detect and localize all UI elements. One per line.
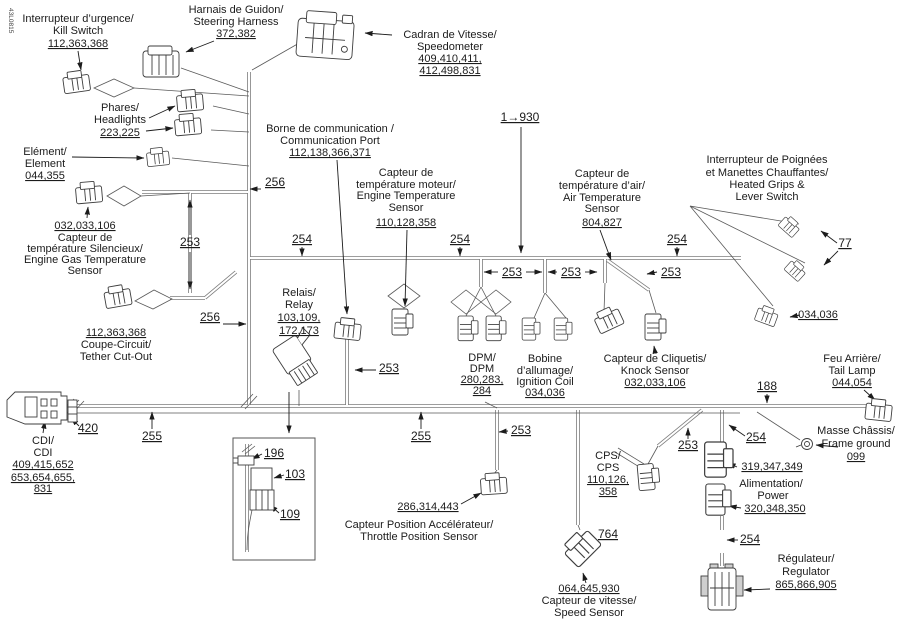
gas-temp-sensor-label: 032,033,106 Capteur de température Silen… — [24, 220, 146, 277]
label-line: Capteur de — [575, 168, 629, 180]
dimension-label: 253 — [502, 265, 522, 279]
element-label: Elément/ Element 044,355 — [23, 146, 67, 182]
dimension-label: 109 — [280, 507, 300, 521]
part-numbers: 034,036 — [525, 387, 565, 399]
label-line: Capteur de Cliquetis/ — [604, 353, 708, 365]
label-line: Speedometer — [417, 41, 483, 53]
wire-links — [94, 42, 805, 550]
label-line: Relais/ — [282, 287, 317, 299]
label-line: CPS/ — [595, 450, 622, 462]
label-line: Tether Cut-Out — [80, 351, 152, 363]
label-line: Cadran de Vitesse/ — [403, 29, 497, 41]
label-line: Communication Port — [280, 135, 380, 147]
dimension-label: 254 — [667, 232, 687, 246]
part-numbers: 112,363,368 — [48, 38, 108, 50]
air-temp-connector-icon — [592, 304, 624, 334]
part-numbers: 044,054 — [832, 377, 872, 389]
part-numbers: 409,410,411, — [418, 53, 481, 65]
label-line: CPS — [597, 462, 620, 474]
knock-sensor-connector-icon — [645, 314, 666, 340]
label-line: Knock Sensor — [621, 365, 690, 377]
part-numbers: 320,348,350 — [744, 503, 805, 515]
tether-connector-icon — [103, 283, 132, 308]
label-line: Heated Grips & — [729, 179, 805, 191]
label-line: Borne de communication / — [266, 123, 395, 135]
headlight-connector-icon — [174, 113, 202, 136]
throttle-position-sensor-connector-icon — [480, 472, 507, 495]
part-numbers: 319,347,349 — [741, 461, 802, 473]
part-numbers: 172,173 — [279, 325, 319, 337]
engine-temp-sensor-label: Capteur de température moteur/ Engine Te… — [356, 167, 457, 229]
label-line: Capteur de vitesse/ — [542, 595, 638, 607]
wire-range-label: 1→930 — [501, 110, 540, 124]
headlights-label: Phares/ Headlights 223,225 — [94, 102, 146, 139]
dimension-label: 188 — [757, 379, 777, 393]
label-line: Sensor — [68, 265, 103, 277]
dimension-label: 764 — [598, 527, 618, 541]
label-line: CDI/ — [32, 435, 55, 447]
part-numbers: 286,314,443 — [397, 501, 458, 513]
dimension-label: 253 — [379, 361, 399, 375]
label-line: CDI — [34, 447, 53, 459]
label-line: Speed Sensor — [554, 607, 624, 619]
regulator-label: Régulateur/ Regulator 865,866,905 — [775, 553, 836, 591]
heated-grip-connector-icon — [784, 258, 808, 282]
label-line: Steering Harness — [194, 16, 279, 28]
dimension-label: 253 — [511, 423, 531, 437]
part-numbers: 064,645,930 — [558, 583, 619, 595]
part-numbers: 865,866,905 — [775, 579, 836, 591]
dimension-label: 255 — [411, 429, 431, 443]
label-line: Sensor — [389, 202, 424, 214]
label-line: Sensor — [585, 203, 620, 215]
speedometer-connector-icon — [296, 10, 355, 60]
wiring-diagram-page: 43L0815 Interrupteur d’urgence/ Kill Swi… — [0, 0, 900, 621]
part-numbers: 223,225 — [100, 127, 140, 139]
ignition-coil-label: Bobine d’allumage/ Ignition Coil 034,036 — [516, 353, 574, 399]
label-line: Frame ground — [821, 438, 890, 450]
part-numbers: 110,128,358 — [376, 217, 436, 229]
diagram-canvas: 43L0815 Interrupteur d’urgence/ Kill Swi… — [0, 0, 900, 621]
label-line: Alimentation/ — [739, 478, 804, 490]
part-numbers: 034,036 — [798, 309, 838, 321]
label-line: Regulator — [782, 566, 830, 578]
label-line: Phares/ — [101, 102, 140, 114]
part-numbers: 358 — [599, 486, 617, 498]
steering-harness-label: Harnais de Guidon/ Steering Harness 372,… — [189, 4, 285, 40]
kill-switch-connector-icon — [62, 69, 91, 93]
dimension-label: 253 — [561, 265, 581, 279]
throttle-position-sensor-label: 286,314,443 Capteur Position Accélérateu… — [345, 501, 495, 543]
dimension-label: 103 — [285, 467, 305, 481]
speedometer-label: Cadran de Vitesse/ Speedometer 409,410,4… — [403, 29, 497, 77]
label-line: Coupe-Circuit/ — [81, 339, 152, 351]
part-numbers: 103,109, — [278, 312, 321, 324]
dpm-label: DPM/ DPM 280,283, 284 — [461, 352, 504, 397]
part-numbers: 110,126, — [587, 474, 629, 486]
part-numbers: 112,138,366,371 — [289, 147, 371, 159]
label-line: et Manettes Chauffantes/ — [706, 167, 830, 179]
label-line: Capteur Position Accélérateur/ — [345, 519, 495, 531]
cps-connector-icon — [637, 463, 660, 491]
part-numbers: 099 — [847, 451, 865, 463]
air-temp-sensor-label: Capteur de température d’air/ Air Temper… — [559, 168, 646, 229]
dimension-label: 256 — [265, 175, 285, 189]
drawing-code: 43L0815 — [7, 8, 14, 34]
cdi-label: CDI/ CDI 409,415,652 653,654,655, 831 — [11, 435, 75, 495]
dpm-connector-icon — [486, 316, 506, 341]
part-numbers: 112,363,368 — [86, 327, 146, 339]
dimension-label: 196 — [264, 446, 284, 460]
cdi-connector-icon — [7, 392, 77, 424]
label-line: Kill Switch — [53, 25, 103, 37]
label-line: Throttle Position Sensor — [360, 531, 478, 543]
label-line: Régulateur/ — [778, 553, 836, 565]
dimension-label: 420 — [78, 421, 98, 435]
label-line: Feu Arrière/ — [823, 353, 881, 365]
label-line: Interrupteur d’urgence/ — [22, 13, 134, 25]
comm-port-connector-icon — [334, 317, 362, 341]
comm-port-label: Borne de communication / Communication P… — [266, 123, 395, 159]
power-connector-icon — [706, 484, 731, 515]
speed-sensor-label: 064,645,930 Capteur de vitesse/ Speed Se… — [542, 583, 638, 619]
dimension-label: 255 — [142, 429, 162, 443]
relay-label: Relais/ Relay 103,109, 172,173 — [278, 287, 321, 337]
label-line: Capteur de — [379, 167, 433, 179]
power-connector-icon — [705, 442, 733, 477]
inset-detail-parts — [233, 456, 274, 510]
tether-cutout-label: 112,363,368 Coupe-Circuit/ Tether Cut-Ou… — [80, 327, 152, 363]
kill-switch-label: Interrupteur d’urgence/ Kill Switch 112,… — [22, 13, 134, 50]
part-numbers: 284 — [473, 385, 491, 397]
dpm-connector-icon — [458, 316, 478, 341]
label-line: Interrupteur de Poignées — [706, 154, 828, 166]
dimension-label: 254 — [450, 232, 470, 246]
ignition-coil-connector-icon — [554, 318, 572, 340]
dimension-label: 254 — [292, 232, 312, 246]
gas-temp-connector-icon — [75, 181, 103, 204]
frame-ground-label: Masse Châssis/ Frame ground 099 — [817, 425, 896, 463]
label-line: Headlights — [94, 114, 146, 126]
heated-grip-connector-icon — [778, 214, 802, 238]
heated-grips-label: Interrupteur de Poignées et Manettes Cha… — [706, 154, 830, 203]
tail-lamp-connector-icon — [865, 398, 893, 422]
label-line: Elément/ — [23, 146, 67, 158]
dimension-label: 77 — [838, 236, 852, 250]
speed-sensor-connector-icon — [560, 526, 602, 568]
steering-harness-connector-icon — [143, 46, 179, 77]
label-line: Engine Temperature — [357, 190, 456, 202]
dimension-label: 254 — [746, 430, 766, 444]
ignition-coil-connector-icon — [522, 318, 540, 340]
part-numbers: 831 — [34, 483, 52, 495]
element-connector-icon — [146, 147, 170, 167]
dimension-label: 253 — [661, 265, 681, 279]
tail-lamp-label: Feu Arrière/ Tail Lamp 044,054 — [823, 353, 881, 389]
label-line: Power — [757, 490, 789, 502]
dimension-label: 256 — [200, 310, 220, 324]
label-line: Relay — [285, 299, 314, 311]
heated-grip-connector-icon — [754, 304, 779, 327]
part-numbers: 804,827 — [582, 217, 622, 229]
part-numbers: 412,498,831 — [419, 65, 480, 77]
label-line: Masse Châssis/ — [817, 425, 896, 437]
part-numbers: 409,415,652 — [12, 459, 73, 471]
part-numbers: 372,382 — [216, 28, 256, 40]
knock-sensor-label: Capteur de Cliquetis/ Knock Sensor 032,0… — [604, 353, 708, 389]
label-line: Harnais de Guidon/ — [189, 4, 285, 16]
label-line: Tail Lamp — [828, 365, 875, 377]
part-numbers: 032,033,106 — [624, 377, 685, 389]
engine-temp-connector-icon — [392, 309, 413, 335]
label-line: Bobine — [528, 353, 562, 365]
dimension-label: 253 — [678, 438, 698, 452]
label-line: température d’air/ — [559, 180, 646, 192]
frame-ground-ring-icon — [796, 439, 813, 450]
part-numbers: 032,033,106 — [54, 220, 115, 232]
label-line: Lever Switch — [736, 191, 799, 203]
dimension-label: 253 — [180, 235, 200, 249]
dimension-label: 254 — [740, 532, 760, 546]
regulator-connector-icon — [701, 564, 743, 610]
power-label: 319,347,349 Alimentation/ Power 320,348,… — [739, 461, 805, 515]
part-numbers: 044,355 — [25, 170, 65, 182]
label-line: Element — [25, 158, 65, 170]
